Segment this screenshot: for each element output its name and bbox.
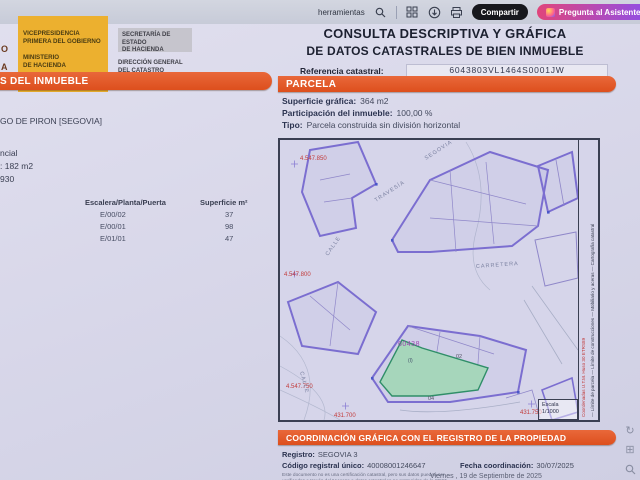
block-number-label: 60438 [398,341,420,348]
document-page: O A VICEPRESIDENCIA PRIMERA DEL GOBIERNO… [0,24,640,480]
secretary-box: SECRETARÍA DE ESTADO DE HACIENDA [118,28,192,52]
parcel-label: (I) [408,358,413,364]
coordination-date-row: Fecha coordinación:30/07/2025 [460,461,574,470]
map-canvas: 4.547.850 4.547.800 4.547.750 431.700 43… [280,140,578,420]
participation-row: Participación del inmueble:100,00 % [282,108,432,118]
street-label: CALLE [325,235,343,257]
table-row: E/01/01 [100,234,126,243]
scale-label: Escala [542,402,577,409]
table-cell: 37 [225,210,233,219]
screen: herramientas Compartir Pregunta al Asist… [0,0,640,480]
registry-row: Registro:SEGOVIA 3 [282,450,358,459]
disclaimer-text: Este documento no es una certificación c… [282,473,446,480]
cadastral-reference-label: Referencia catastral: [300,66,384,76]
property-year: 930 [0,174,14,184]
registry-code-row: Código registral único:40008001246647 [282,461,426,470]
share-button-label: Compartir [481,8,519,17]
legend-items: — Límite de parcela — Límite de construc… [588,140,597,420]
parcel-label: 02 [456,354,462,360]
property-location: GO DE PIRON [SEGOVIA] [0,116,102,126]
table-cell: 98 [225,222,233,231]
street-label: TRAVESÍA [373,179,406,204]
assistant-button-label: Pregunta al Asistente [559,8,640,17]
scale-value: 1/1000 [542,409,577,416]
units-table-col1-header: Escalera/Planta/Puerta [85,198,166,207]
map-coordinate: 4.547.850 [300,156,327,162]
property-use: ncial [0,148,17,158]
page-view-icon[interactable] [406,6,419,19]
parcel-label: 04 [428,396,434,402]
map-coordinate: 4.547.800 [284,272,311,278]
fit-page-icon[interactable]: ⊞ [625,445,634,456]
legend-coordinates-note: Coordenadas U.T.M. Huso 30 ETRS89 [579,140,588,420]
section-header-parcela: PARCELA [278,76,616,92]
gov-logo-partial: O A [1,40,11,76]
rotate-icon[interactable]: ↻ [625,426,634,437]
units-table-col2-header: Superficie m² [200,198,248,207]
assistant-icon [546,8,555,17]
map-scale-box: Escala 1/1000 [538,399,578,420]
table-row: E/00/01 [100,222,126,231]
graphic-area-row: Superficie gráfica:364 m2 [282,96,389,106]
share-button[interactable]: Compartir [472,4,528,20]
street-label: CALLE [298,371,310,394]
download-icon[interactable] [428,6,441,19]
street-label: SEGOVIA [424,140,454,162]
print-icon[interactable] [450,6,463,19]
zoom-icon[interactable] [625,464,636,478]
table-row: E/00/02 [100,210,126,219]
street-label: CARRETERA [476,261,519,270]
map-legend-strip: Coordenadas U.T.M. Huso 30 ETRS89 — Lími… [578,140,598,420]
toolbar-divider [396,6,397,19]
search-icon[interactable] [374,6,387,19]
section-header-inmueble: S DEL INMUEBLE [0,72,272,90]
pdf-floating-controls: ↻ ⊞ [622,426,638,478]
type-row: Tipo:Parcela construida sin división hor… [282,120,460,130]
property-area: : 182 m2 [0,161,33,171]
document-title: CONSULTA DESCRIPTIVA Y GRÁFICA DE DATOS … [290,26,600,58]
assistant-button[interactable]: Pregunta al Asistente [537,4,640,20]
print-date: Viernes , 19 de Septiembre de 2025 [430,473,542,480]
tools-menu[interactable]: herramientas [318,8,365,17]
section-header-coordinacion: COORDINACIÓN GRÁFICA CON EL REGISTRO DE … [278,430,616,445]
cadastral-map: 4.547.850 4.547.800 4.547.750 431.700 43… [278,138,600,422]
table-cell: 47 [225,234,233,243]
map-coordinate: 431.700 [334,413,356,419]
